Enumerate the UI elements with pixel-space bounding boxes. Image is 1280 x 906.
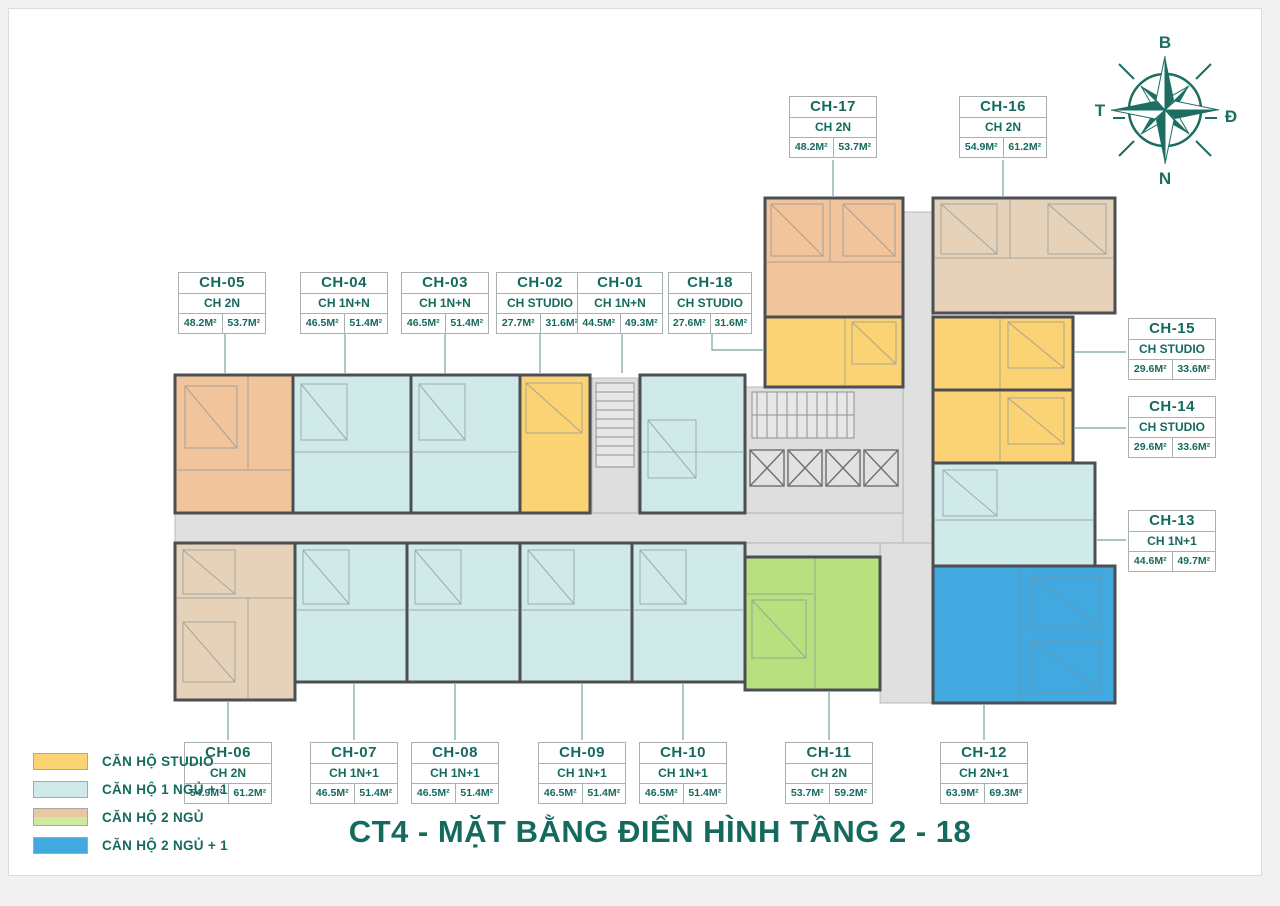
unit-area-gross: 61.2M² xyxy=(229,784,272,803)
legend: CĂN HỘ STUDIO CĂN HỘ 1 NGỦ + 1 CĂN HỘ 2 … xyxy=(33,752,228,864)
unit-label-ch-10: CH-10 CH 1N+1 46.5M²51.4M² xyxy=(639,742,727,804)
unit-area-net: 46.5M² xyxy=(412,784,456,803)
unit-id: CH-09 xyxy=(539,743,625,764)
compass-north-label: B xyxy=(1159,33,1171,52)
legend-item-2bed: CĂN HỘ 2 NGỦ xyxy=(33,808,228,826)
unit-type: CH 1N+N xyxy=(402,294,488,314)
unit-id: CH-05 xyxy=(179,273,265,294)
unit-area-net: 29.6M² xyxy=(1129,360,1173,379)
unit-type: CH 2N+1 xyxy=(941,764,1027,784)
stairs-core xyxy=(752,392,854,438)
unit-type: CH STUDIO xyxy=(1129,418,1215,438)
unit-id: CH-13 xyxy=(1129,511,1215,532)
legend-swatch-2bed-top xyxy=(34,809,87,817)
legend-label: CĂN HỘ 2 NGỦ xyxy=(102,810,204,825)
unit-label-ch-12: CH-12 CH 2N+1 63.9M²69.3M² xyxy=(940,742,1028,804)
legend-item-1bed: CĂN HỘ 1 NGỦ + 1 xyxy=(33,780,228,798)
unit-area-gross: 49.3M² xyxy=(621,314,663,333)
unit-ch-11 xyxy=(745,557,880,690)
unit-label-ch-03: CH-03 CH 1N+N 46.5M²51.4M² xyxy=(401,272,489,334)
unit-ch-17 xyxy=(765,198,903,317)
unit-ch-10 xyxy=(632,543,745,682)
stairs-mid xyxy=(596,383,634,467)
unit-label-ch-09: CH-09 CH 1N+1 46.5M²51.4M² xyxy=(538,742,626,804)
unit-label-ch-15: CH-15 CH STUDIO 29.6M²33.6M² xyxy=(1128,318,1216,380)
unit-type: CH 1N+1 xyxy=(311,764,397,784)
unit-type: CH 2N xyxy=(790,118,876,138)
unit-ch-14 xyxy=(933,390,1073,463)
legend-label: CĂN HỘ STUDIO xyxy=(102,754,214,769)
unit-id: CH-01 xyxy=(578,273,662,294)
unit-label-ch-04: CH-04 CH 1N+N 46.5M²51.4M² xyxy=(300,272,388,334)
unit-area-gross: 69.3M² xyxy=(985,784,1028,803)
unit-area-net: 46.5M² xyxy=(402,314,446,333)
unit-area-gross: 51.4M² xyxy=(355,784,398,803)
unit-area-gross: 49.7M² xyxy=(1173,552,1216,571)
unit-ch-13 xyxy=(933,463,1095,566)
unit-ch-01 xyxy=(640,375,745,513)
unit-label-ch-11: CH-11 CH 2N 53.7M²59.2M² xyxy=(785,742,873,804)
unit-label-ch-01: CH-01 CH 1N+N 44.5M²49.3M² xyxy=(577,272,663,334)
unit-label-ch-16: CH-16 CH 2N 54.9M²61.2M² xyxy=(959,96,1047,158)
unit-label-ch-08: CH-08 CH 1N+1 46.5M²51.4M² xyxy=(411,742,499,804)
unit-id: CH-03 xyxy=(402,273,488,294)
unit-type: CH 1N+1 xyxy=(412,764,498,784)
unit-area-gross: 51.4M² xyxy=(456,784,499,803)
legend-label: CĂN HỘ 2 NGỦ + 1 xyxy=(102,838,228,853)
unit-area-net: 46.5M² xyxy=(311,784,355,803)
unit-area-net: 46.5M² xyxy=(301,314,345,333)
unit-ch-08 xyxy=(407,543,520,682)
unit-type: CH 1N+1 xyxy=(640,764,726,784)
unit-area-net: 54.9M² xyxy=(960,138,1004,157)
unit-label-ch-13: CH-13 CH 1N+1 44.6M²49.7M² xyxy=(1128,510,1216,572)
unit-label-ch-07: CH-07 CH 1N+1 46.5M²51.4M² xyxy=(310,742,398,804)
unit-id: CH-02 xyxy=(497,273,583,294)
unit-area-gross: 31.6M² xyxy=(711,314,752,333)
unit-type: CH 1N+N xyxy=(301,294,387,314)
legend-swatch-2bed-bottom xyxy=(34,817,87,825)
unit-ch-09 xyxy=(520,543,632,682)
unit-type: CH STUDIO xyxy=(1129,340,1215,360)
unit-area-gross: 51.4M² xyxy=(684,784,727,803)
unit-area-gross: 61.2M² xyxy=(1004,138,1047,157)
unit-id: CH-12 xyxy=(941,743,1027,764)
unit-id: CH-18 xyxy=(669,273,751,294)
unit-area-net: 27.6M² xyxy=(669,314,711,333)
unit-area-gross: 33.6M² xyxy=(1173,438,1216,457)
unit-ch-16 xyxy=(933,198,1115,313)
unit-id: CH-10 xyxy=(640,743,726,764)
compass-south-label: N xyxy=(1159,169,1171,188)
unit-type: CH 1N+1 xyxy=(1129,532,1215,552)
unit-area-net: 48.2M² xyxy=(790,138,834,157)
unit-area-net: 29.6M² xyxy=(1129,438,1173,457)
unit-label-ch-17: CH-17 CH 2N 48.2M²53.7M² xyxy=(789,96,877,158)
unit-id: CH-14 xyxy=(1129,397,1215,418)
legend-item-2bed-plus: CĂN HỘ 2 NGỦ + 1 xyxy=(33,836,228,854)
unit-id: CH-15 xyxy=(1129,319,1215,340)
unit-area-gross: 53.7M² xyxy=(223,314,266,333)
legend-swatch-studio xyxy=(33,753,88,770)
unit-area-net: 63.9M² xyxy=(941,784,985,803)
compass-east-label: Đ xyxy=(1225,107,1237,126)
unit-type: CH 2N xyxy=(786,764,872,784)
unit-ch-07 xyxy=(295,543,407,682)
compass-west-label: T xyxy=(1095,101,1106,120)
unit-area-net: 53.7M² xyxy=(786,784,830,803)
unit-id: CH-11 xyxy=(786,743,872,764)
unit-area-gross: 51.4M² xyxy=(583,784,626,803)
legend-swatch-2bed-plus xyxy=(33,837,88,854)
unit-area-net: 44.6M² xyxy=(1129,552,1173,571)
unit-type: CH 2N xyxy=(179,294,265,314)
page-title: CT4 - MẶT BẰNG ĐIỂN HÌNH TẦNG 2 - 18 xyxy=(290,814,1030,850)
unit-label-ch-02: CH-02 CH STUDIO 27.7M²31.6M² xyxy=(496,272,584,334)
unit-area-net: 46.5M² xyxy=(640,784,684,803)
unit-type: CH STUDIO xyxy=(669,294,751,314)
unit-id: CH-16 xyxy=(960,97,1046,118)
unit-ch-15 xyxy=(933,317,1073,390)
unit-ch-18 xyxy=(765,317,903,387)
unit-area-gross: 51.4M² xyxy=(345,314,388,333)
unit-ch-02 xyxy=(520,375,590,513)
legend-label: CĂN HỘ 1 NGỦ + 1 xyxy=(102,782,228,797)
unit-area-net: 27.7M² xyxy=(497,314,541,333)
legend-swatch-2bed xyxy=(33,808,88,826)
unit-type: CH 1N+N xyxy=(578,294,662,314)
unit-type: CH 1N+1 xyxy=(539,764,625,784)
unit-id: CH-17 xyxy=(790,97,876,118)
unit-type: CH STUDIO xyxy=(497,294,583,314)
unit-id: CH-08 xyxy=(412,743,498,764)
unit-area-net: 46.5M² xyxy=(539,784,583,803)
unit-type: CH 2N xyxy=(960,118,1046,138)
unit-id: CH-07 xyxy=(311,743,397,764)
unit-label-ch-18: CH-18 CH STUDIO 27.6M²31.6M² xyxy=(668,272,752,334)
unit-area-net: 48.2M² xyxy=(179,314,223,333)
unit-label-ch-05: CH-05 CH 2N 48.2M²53.7M² xyxy=(178,272,266,334)
legend-swatch-1bed xyxy=(33,781,88,798)
compass-rose-icon: B N T Đ xyxy=(1090,28,1240,188)
unit-id: CH-04 xyxy=(301,273,387,294)
unit-area-gross: 59.2M² xyxy=(830,784,873,803)
unit-area-gross: 33.6M² xyxy=(1173,360,1216,379)
legend-item-studio: CĂN HỘ STUDIO xyxy=(33,752,228,770)
unit-label-ch-14: CH-14 CH STUDIO 29.6M²33.6M² xyxy=(1128,396,1216,458)
unit-area-net: 44.5M² xyxy=(578,314,621,333)
unit-area-gross: 53.7M² xyxy=(834,138,877,157)
unit-area-gross: 51.4M² xyxy=(446,314,489,333)
